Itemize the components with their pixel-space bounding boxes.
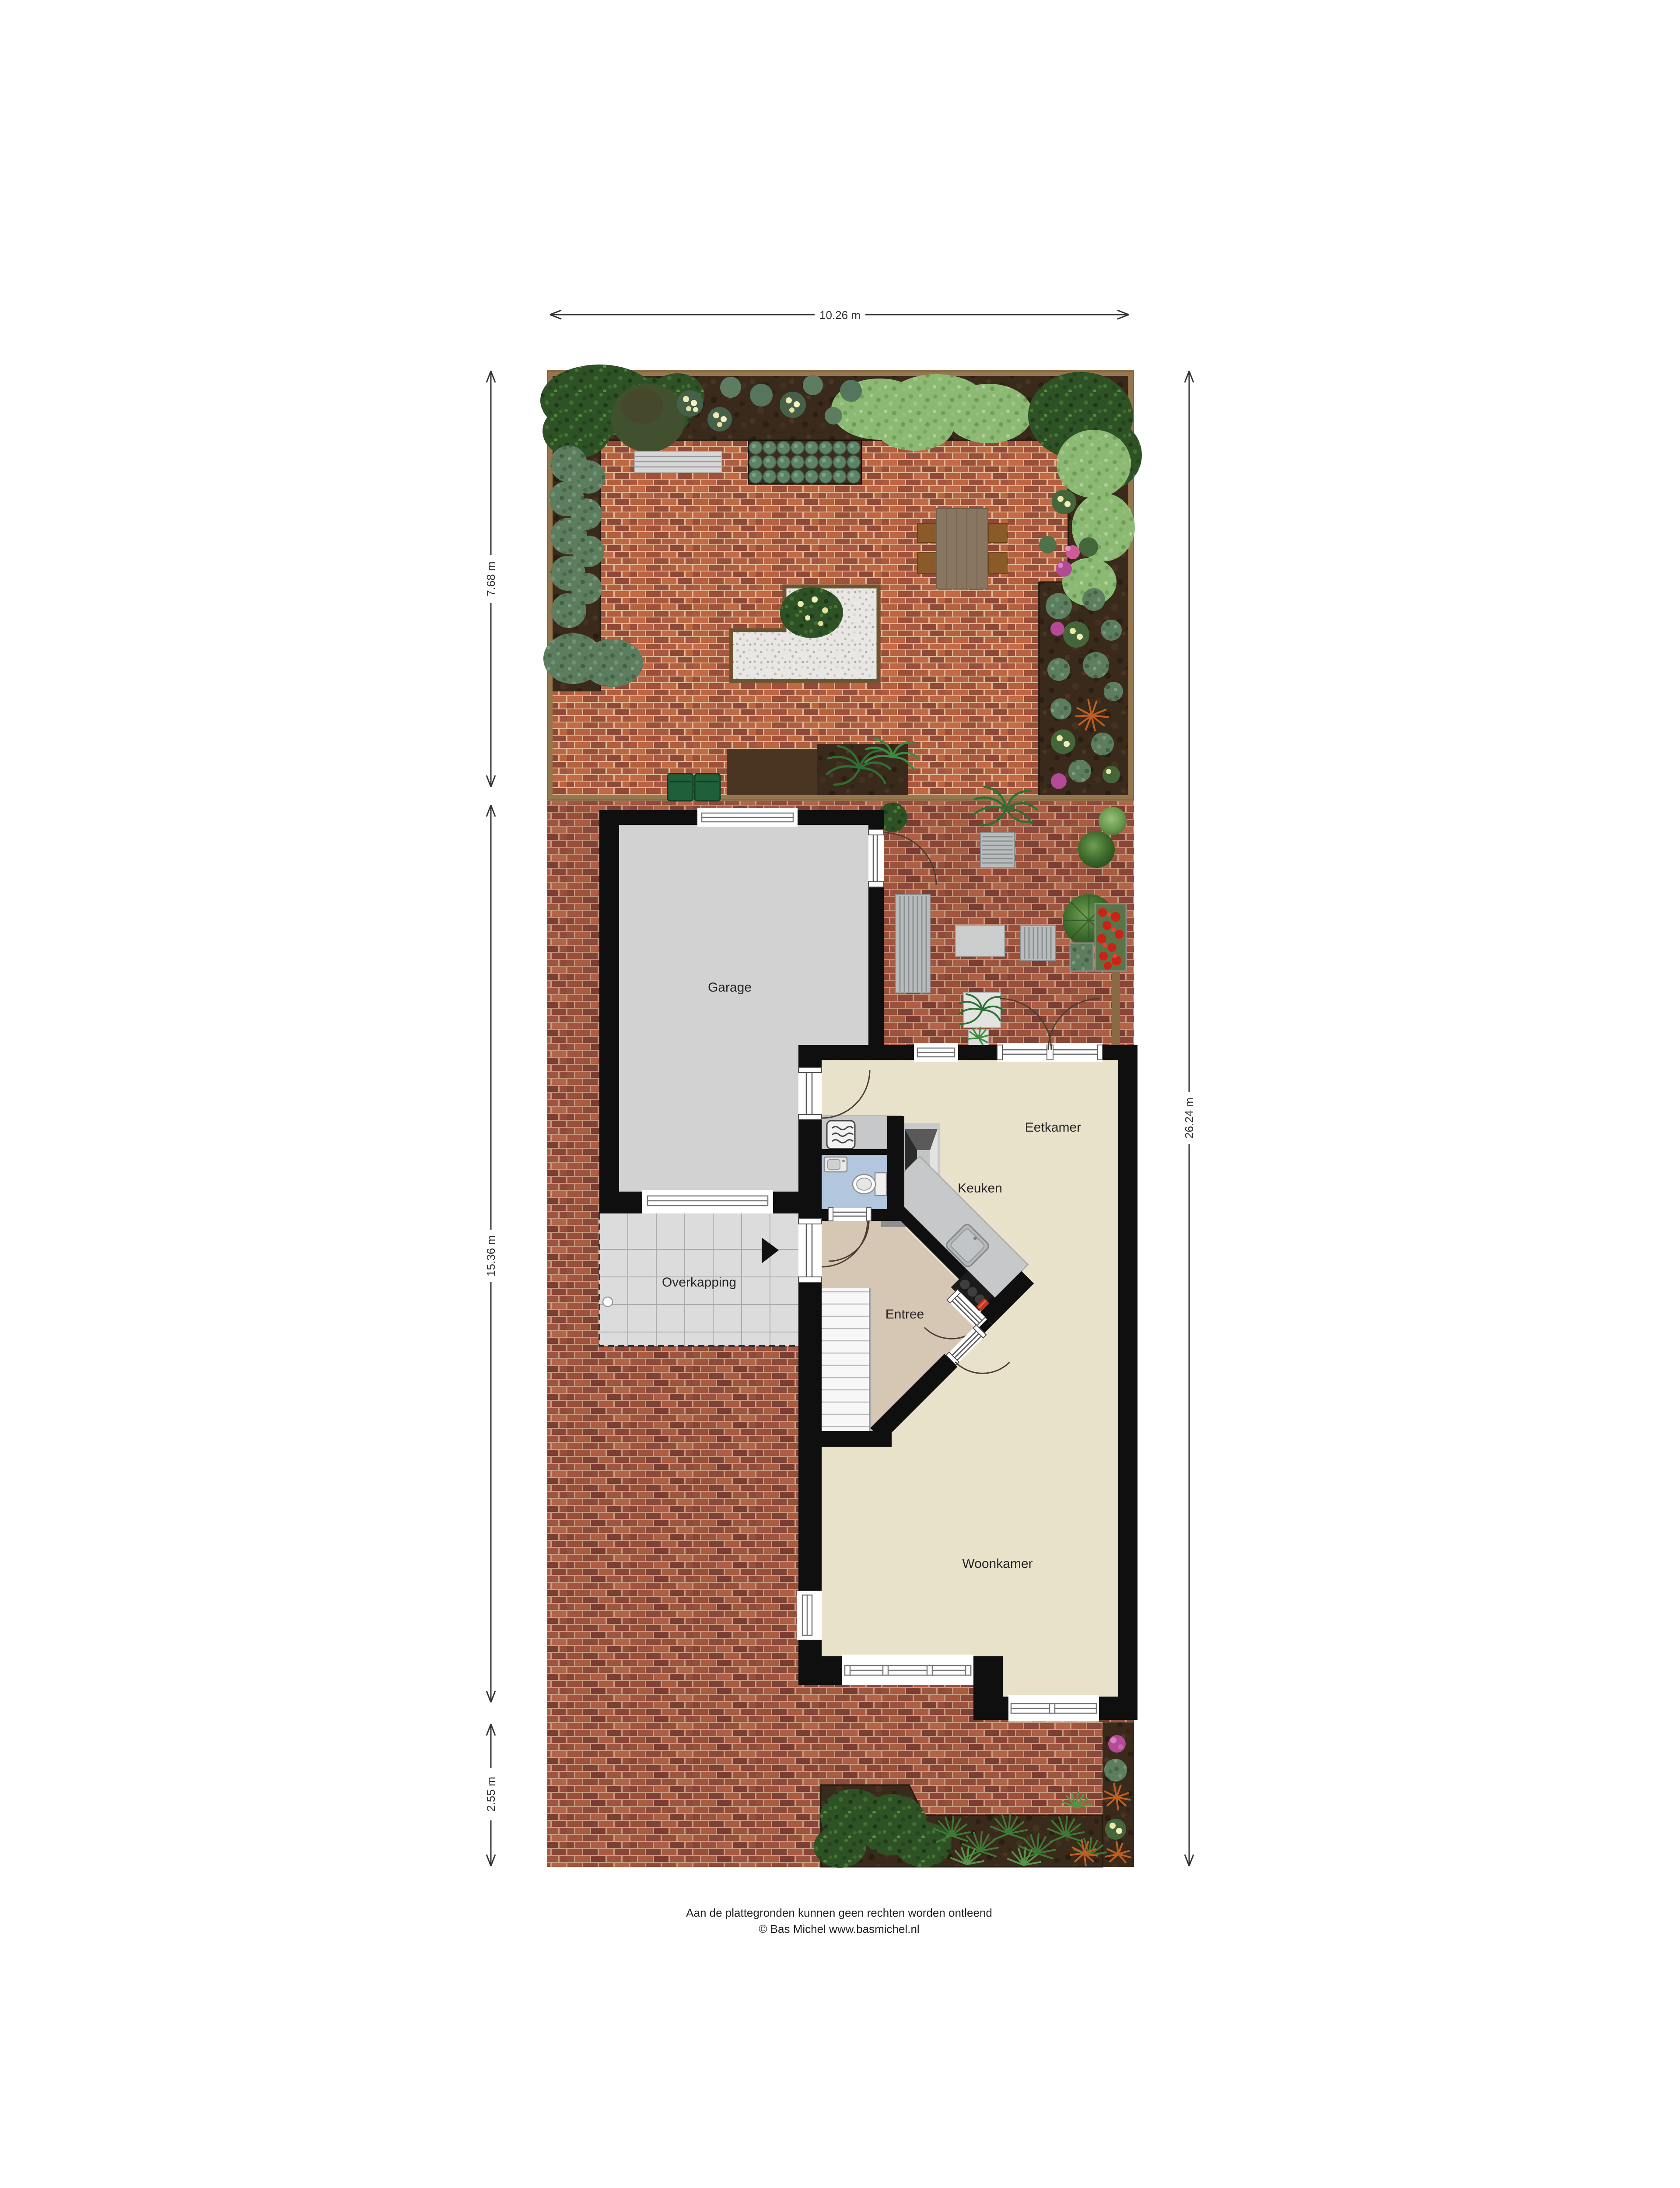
svg-text:26.24 m: 26.24 m: [1183, 1098, 1196, 1139]
svg-text:Woonkamer: Woonkamer: [962, 1557, 1032, 1571]
svg-text:© Bas Michel www.basmichel.nl: © Bas Michel www.basmichel.nl: [759, 1922, 919, 1936]
svg-text:Overkapping: Overkapping: [662, 1275, 736, 1290]
svg-text:10.26 m: 10.26 m: [819, 309, 861, 322]
svg-text:Aan de plattegronden kunnen ge: Aan de plattegronden kunnen geen rechten…: [686, 1906, 992, 1919]
svg-text:Entree: Entree: [885, 1307, 924, 1322]
svg-text:15.36 m: 15.36 m: [484, 1235, 497, 1276]
svg-text:2.55 m: 2.55 m: [484, 1777, 497, 1812]
svg-text:Keuken: Keuken: [958, 1181, 1002, 1196]
svg-text:Eetkamer: Eetkamer: [1025, 1120, 1081, 1135]
svg-text:7.68 m: 7.68 m: [484, 561, 497, 596]
svg-text:Garage: Garage: [708, 980, 752, 995]
